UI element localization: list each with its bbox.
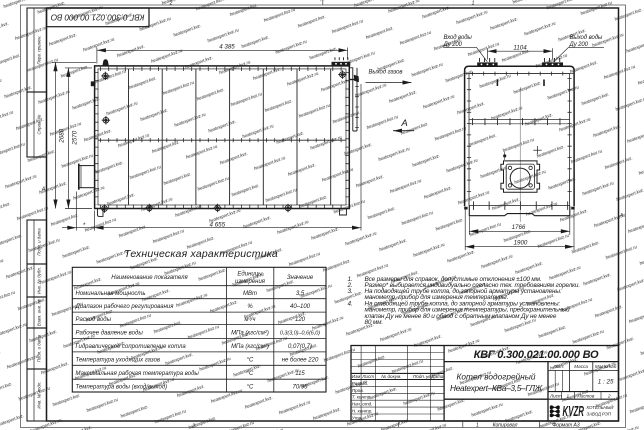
svg-text:Масса: Масса (574, 364, 588, 369)
svg-text:МПа (кгс/см²): МПа (кгс/см²) (231, 330, 269, 336)
svg-text:Лист: Лист (361, 374, 374, 379)
svg-text:клапан Ду не менее 80 и обвод: клапан Ду не менее 80 и обвод с обратным… (365, 312, 557, 320)
svg-text:Heatexpert–КВа–3,5–ГЛЖ: Heatexpert–КВа–3,5–ГЛЖ (450, 383, 544, 393)
svg-text:Справ. №: Справ. № (37, 114, 42, 134)
svg-text:Т. контр.: Т. контр. (352, 395, 372, 400)
svg-text:измерения: измерения (235, 279, 266, 285)
svg-text:КВГ 0.300.021.00.000 ВО: КВГ 0.300.021.00.000 ВО (50, 12, 144, 22)
svg-text:Утв.: Утв. (352, 415, 362, 420)
svg-text:МПа (кгс/см²): МПа (кгс/см²) (231, 344, 269, 350)
svg-text:Расход воды: Расход воды (76, 317, 112, 323)
svg-text:40–100: 40–100 (290, 304, 311, 310)
svg-text:Вход воды: Вход воды (444, 35, 473, 41)
svg-text:Перв. примен.: Перв. примен. (37, 35, 42, 64)
svg-text:Техническая характеристика: Техническая характеристика (124, 248, 278, 260)
svg-text:4.: 4. (348, 300, 353, 307)
svg-text:Номинальная мощность: Номинальная мощность (76, 291, 146, 297)
svg-text:Подп. и дата: Подп. и дата (37, 228, 42, 256)
svg-text:1900: 1900 (514, 239, 528, 246)
svg-text:А: А (41, 187, 46, 193)
svg-text:4 385: 4 385 (219, 44, 235, 51)
svg-text:Единицы: Единицы (237, 272, 263, 278)
svg-text:%: % (247, 304, 253, 310)
svg-text:Формат А3: Формат А3 (552, 422, 580, 428)
svg-text:Масштаб: Масштаб (595, 364, 617, 369)
svg-text:Инв. № дубл.: Инв. № дубл. (37, 267, 42, 294)
svg-text:Листов: Листов (577, 394, 595, 399)
svg-text:°С: °С (247, 357, 254, 363)
svg-text:не более 220: не более 220 (282, 357, 319, 363)
svg-text:3.: 3. (348, 288, 353, 295)
svg-text:Выход воды: Выход воды (570, 35, 603, 41)
svg-text:Максимальная рабочая температу: Максимальная рабочая температура воды (76, 371, 200, 377)
svg-text:120: 120 (295, 317, 306, 323)
svg-text:Температура уходящих газов: Температура уходящих газов (76, 357, 161, 363)
svg-text:Взам. инв. №: Взам. инв. № (37, 299, 42, 326)
svg-text:Рабочее давление воды: Рабочее давление воды (76, 330, 144, 336)
svg-text:м³/ч: м³/ч (245, 317, 256, 323)
svg-text:1: 1 (567, 394, 570, 399)
svg-text:2: 2 (169, 1, 173, 7)
svg-text:2: 2 (191, 423, 195, 429)
svg-text:Инв. № подл.: Инв. № подл. (37, 381, 42, 408)
svg-text:Изм: Изм (352, 374, 361, 379)
svg-text:Разраб.: Разраб. (352, 381, 369, 386)
svg-text:Лист: Лист (549, 394, 562, 399)
svg-text:115: 115 (295, 371, 305, 377)
svg-text:Копировал: Копировал (493, 422, 518, 428)
svg-text:70/95: 70/95 (292, 384, 308, 390)
svg-text:ЗАВОД РЭП: ЗАВОД РЭП (587, 412, 612, 417)
svg-text:Лит.: Лит. (552, 364, 564, 369)
svg-text:КОТЕЛЬНЫЙ: КОТЕЛЬНЫЙ (587, 405, 615, 410)
svg-text:1: 1 (476, 422, 479, 428)
svg-text:0,07(0,7): 0,07(0,7) (288, 344, 312, 350)
svg-text:°С: °С (247, 384, 254, 390)
svg-text:1: 1 (472, 1, 475, 7)
svg-text:2680: 2680 (58, 128, 65, 143)
svg-text:Пров.: Пров. (352, 388, 364, 393)
svg-text:Гидравлическое сопротивление к: Гидравлическое сопротивление котла (76, 344, 187, 350)
svg-text:Наименование показателя: Наименование показателя (111, 275, 188, 281)
svg-text:1766: 1766 (512, 224, 526, 231)
svg-text:2: 2 (607, 394, 611, 399)
svg-text:1104: 1104 (513, 44, 527, 51)
svg-text:Котел водогрейный: Котел водогрейный (457, 372, 536, 382)
svg-text:№ докум.: № докум. (381, 374, 401, 379)
svg-text:МВт: МВт (243, 291, 257, 297)
svg-text:4 655: 4 655 (210, 221, 226, 228)
svg-text:Н. контр.: Н. контр. (352, 409, 373, 414)
svg-text:Дата: Дата (430, 374, 444, 379)
svg-text:Выход газов: Выход газов (369, 70, 403, 76)
svg-text:KVZR: KVZR (563, 404, 585, 420)
svg-text:Нач. отд.: Нач. отд. (352, 402, 373, 407)
svg-text:80 мм.: 80 мм. (365, 319, 384, 326)
svg-text:КВГ 0.300.021.00.000 ВО: КВГ 0.300.021.00.000 ВО (474, 349, 599, 361)
svg-text:1 : 25: 1 : 25 (598, 379, 614, 386)
svg-text:3,5: 3,5 (296, 291, 305, 297)
svg-text:Диапазон рабочего регулировани: Диапазон рабочего регулирования (75, 304, 175, 310)
svg-text:Значение: Значение (287, 275, 314, 281)
svg-text:А: А (400, 118, 407, 129)
svg-text:2570: 2570 (71, 130, 78, 145)
svg-text:Подп.: Подп. (413, 374, 425, 379)
svg-text:Подп. и дата: Подп. и дата (37, 334, 42, 362)
svg-text:Температура воды (вход/выход): Температура воды (вход/выход) (76, 384, 168, 390)
svg-text:А: А (619, 213, 624, 219)
svg-text:0,3(3,0)–0,6(6,0): 0,3(3,0)–0,6(6,0) (280, 330, 320, 336)
svg-text:°С: °С (247, 371, 254, 377)
